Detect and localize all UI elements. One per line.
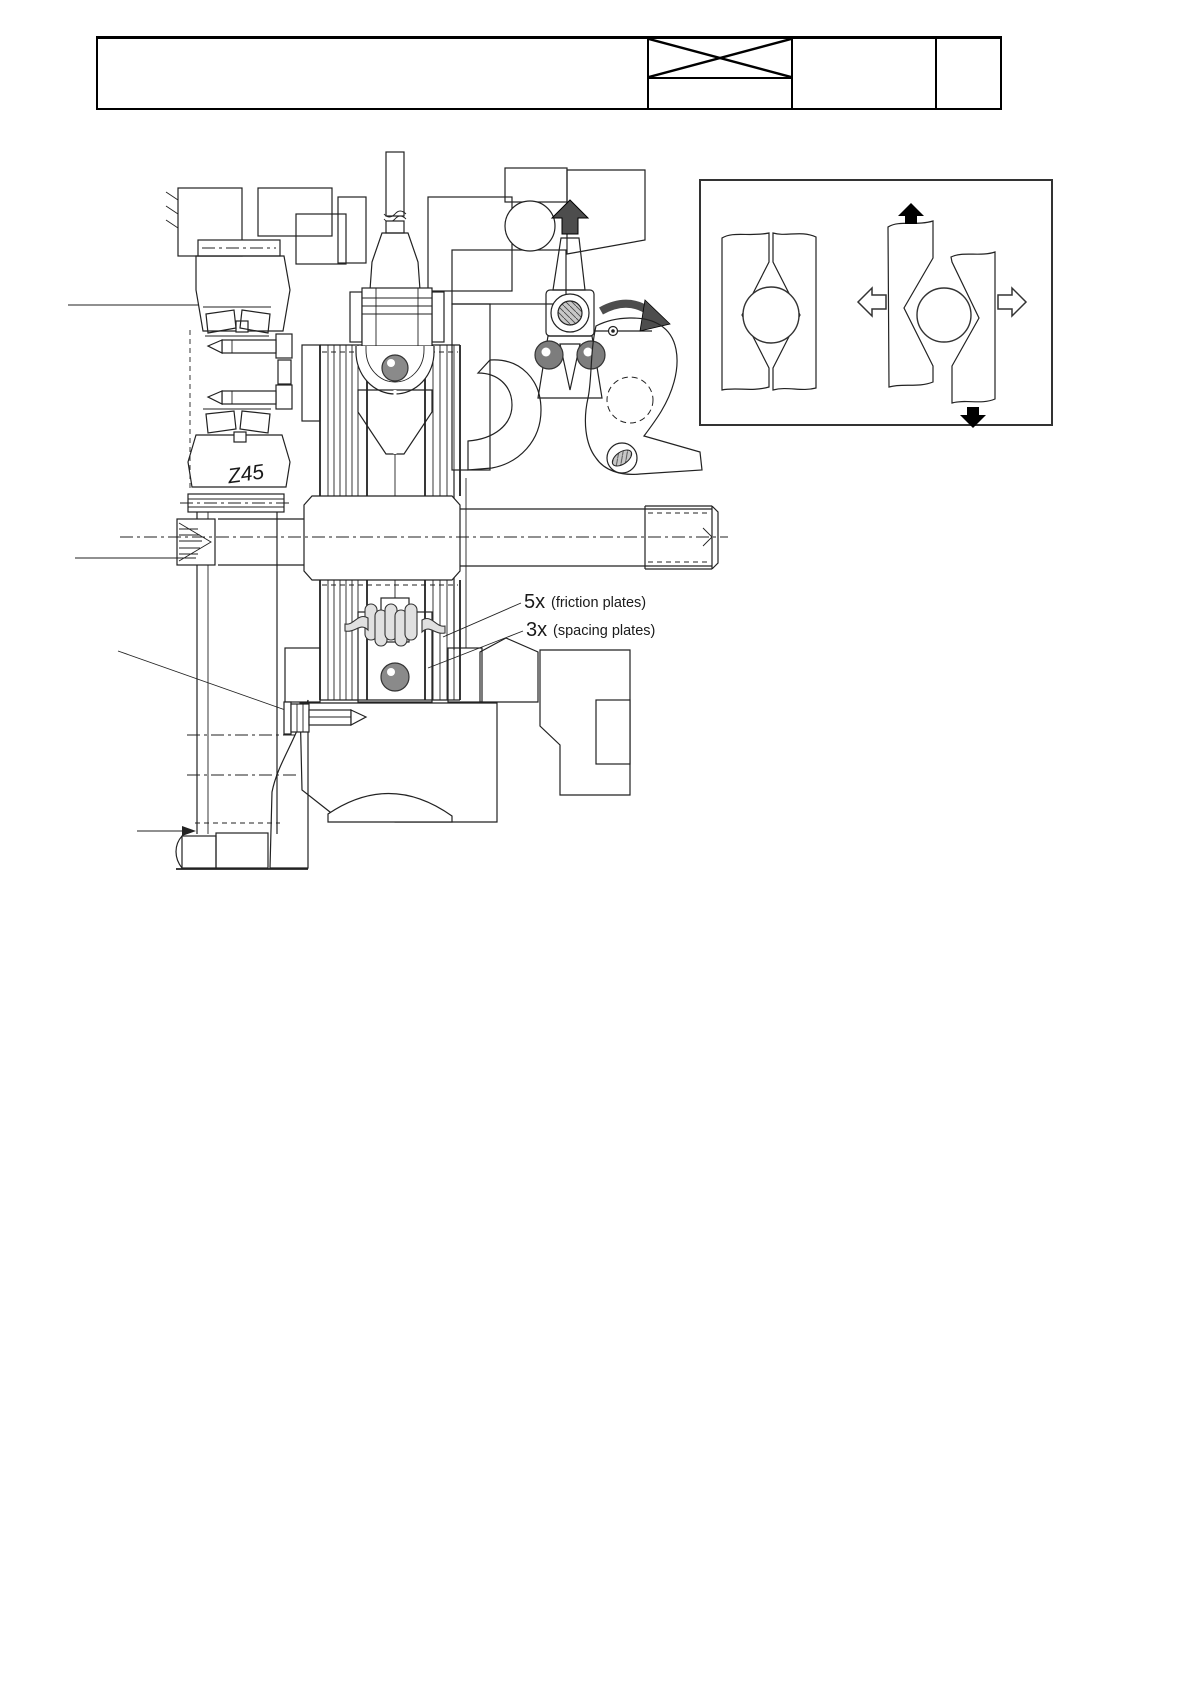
upper-housing — [166, 188, 366, 332]
ramp-ball — [743, 287, 799, 343]
stud-bolts — [208, 334, 292, 409]
manual-page: Z45 — [0, 0, 1190, 1684]
lower-housing — [300, 638, 630, 822]
fork-ball — [382, 355, 408, 381]
rotation-arrow-icon — [601, 304, 650, 312]
lever-detail-view — [535, 200, 702, 474]
callout-leader — [443, 603, 521, 637]
callout-leader — [428, 631, 523, 668]
friction-plates-qty: 5x — [524, 591, 545, 613]
friction-plates-label: (friction plates) — [551, 595, 646, 611]
push-rod — [386, 152, 404, 216]
detent-ball — [381, 663, 409, 691]
callout-spacing-plates: 3x (spacing plates) — [428, 619, 655, 668]
gear-tooth-count-label: Z45 — [225, 460, 265, 488]
wave-spring — [345, 604, 445, 646]
ball-ramp-inset — [700, 180, 1052, 428]
main-section-view: Z45 — [68, 152, 728, 869]
clutch-section-drawing: Z45 — [0, 0, 1190, 1684]
gear-z45: Z45 — [180, 432, 292, 512]
pivot-pin — [558, 301, 582, 325]
locating-pin — [284, 702, 366, 734]
up-arrow-icon — [552, 200, 588, 234]
spacing-plates-label: (spacing plates) — [553, 623, 655, 639]
upper-gear — [196, 256, 290, 331]
housing-hook — [468, 360, 541, 470]
section-arrow-icon — [182, 826, 196, 836]
ramp-ball — [917, 288, 971, 342]
spacing-plates-qty: 3x — [526, 619, 547, 641]
pin-leader-line — [118, 651, 291, 712]
cam-body — [585, 318, 702, 474]
detent-assembly — [345, 598, 445, 702]
